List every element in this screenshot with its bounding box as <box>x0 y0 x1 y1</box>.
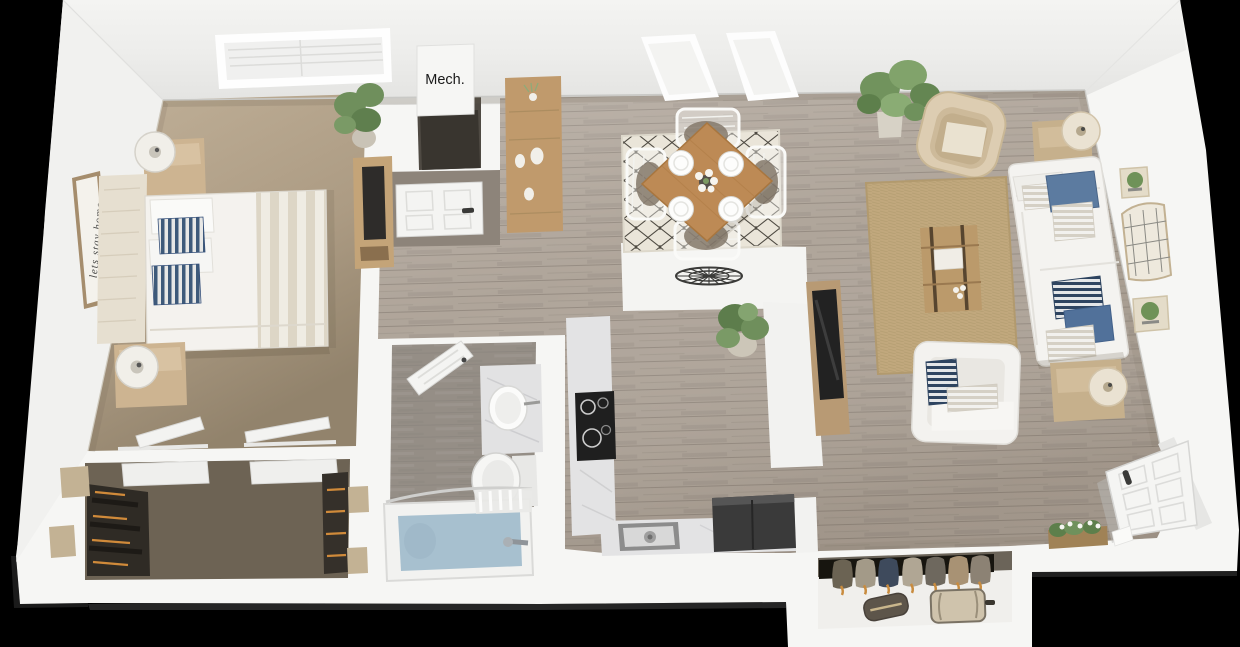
svg-text:Mech.: Mech. <box>425 72 465 88</box>
